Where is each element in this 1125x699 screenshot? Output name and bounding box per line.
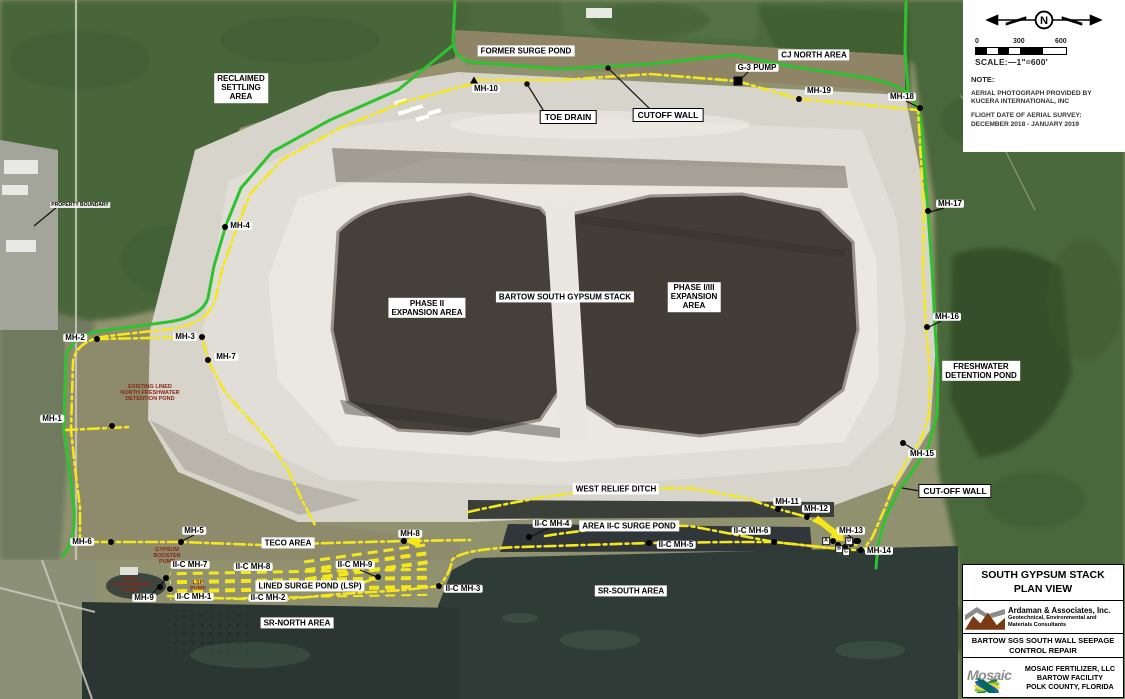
client-text: MOSAIC FERTILIZER, LLC BARTOW FACILITY P…	[1019, 664, 1121, 691]
mh-11-marker	[775, 506, 781, 512]
mh-17-marker	[925, 208, 931, 214]
point-marker-1	[167, 586, 173, 592]
ii-c-mh-2: II-C MH-2	[249, 594, 288, 602]
ii-c-mh-7: II-C MH-7	[171, 561, 210, 569]
marker-d: D	[845, 537, 853, 545]
teco-area: TECO AREA	[262, 537, 315, 548]
mh-7-marker	[205, 357, 211, 363]
freshwater-detention-pond: FRESHWATER DETENTION POND	[942, 361, 1020, 381]
mh-16: MH-16	[933, 313, 961, 321]
spill-containment-pond: SPILL CONTAINMENT POND	[111, 576, 151, 594]
ii-c-mh-4-marker	[526, 534, 532, 540]
ii-c-mh-1: II-C MH-1	[175, 593, 214, 601]
mh-5-marker	[178, 539, 184, 545]
area-ii-c-surge-pond: AREA II-C SURGE POND	[579, 520, 679, 531]
mh-9: MH-9	[132, 594, 156, 602]
mh-7: MH-7	[214, 353, 238, 361]
legend-panel: N 0 300 600 SCALE:—1"=600' NOTE: AERIAL …	[963, 0, 1125, 152]
mh-3: MH-3	[173, 333, 197, 341]
ii-c-mh-6-marker	[771, 539, 777, 545]
svg-text:N: N	[1040, 15, 1048, 27]
ardaman-logo-icon	[965, 604, 1005, 630]
mh-11: MH-11	[773, 498, 801, 506]
point-marker-5	[830, 538, 836, 544]
map-label-layer: RECLAIMED SETTLING AREAFORMER SURGE POND…	[0, 0, 1125, 699]
g3-pump-marker	[734, 77, 743, 86]
mosaic-logo: Mosaic	[965, 663, 1017, 693]
sr-north-area: SR-NORTH AREA	[261, 617, 334, 628]
mh-4: MH-4	[228, 222, 252, 230]
scale-tick-300: 300	[1013, 38, 1025, 45]
project-title: BARTOW SGS SOUTH WALL SEEPAGE CONTROL RE…	[963, 634, 1123, 658]
mh-12: MH-12	[802, 505, 830, 513]
point-marker-6	[855, 538, 861, 544]
phase-ii-expansion-area: PHASE II EXPANSION AREA	[388, 298, 465, 318]
sr-south-area: SR-SOUTH AREA	[595, 585, 667, 596]
title-block: SOUTH GYPSUM STACK PLAN VIEW Ardaman & A…	[962, 564, 1124, 698]
lined-surge-pond-lsp: LINED SURGE POND (LSP)	[255, 580, 364, 591]
mh-10-marker	[470, 77, 478, 84]
ii-c-mh-3-marker	[436, 583, 442, 589]
mosaic-wordmark: Mosaic	[967, 667, 1011, 683]
marker-a: A	[822, 537, 830, 545]
mh-8: MH-8	[398, 530, 422, 538]
toe-drain: TOE DRAIN	[540, 110, 597, 124]
ii-c-mh-9-marker	[375, 574, 381, 580]
mh-1: MH-1	[40, 415, 64, 423]
phase-i-iii-expansion-area: PHASE I/III EXPANSION AREA	[668, 282, 721, 312]
cj-north-area: CJ NORTH AREA	[778, 49, 849, 60]
existing-lined-north-freshwater-detention-pond: EXISTING LINED NORTH FRESHWATER DETENTIO…	[120, 384, 179, 402]
scale-tick-0: 0	[975, 38, 979, 45]
mh-12-marker	[804, 514, 810, 520]
mh-10: MH-10	[472, 85, 500, 93]
mh-19: MH-19	[805, 87, 833, 95]
mh-15-marker	[900, 440, 906, 446]
marker-c: C	[842, 548, 850, 556]
mh-14-marker	[858, 547, 864, 553]
mh-2: MH-2	[63, 334, 87, 342]
mh-15: MH-15	[908, 450, 936, 458]
mh-16-marker	[924, 324, 930, 330]
mh-17: MH-17	[936, 200, 964, 208]
ii-c-mh-8: II-C MH-8	[234, 563, 273, 571]
ii-c-mh-9: II-C MH-9	[336, 561, 375, 569]
cutoff-wall: CUTOFF WALL	[633, 108, 704, 122]
scale-text: SCALE:—1"=600'	[975, 57, 1119, 67]
plan-view-map: RECLAIMED SETTLING AREAFORMER SURGE POND…	[0, 0, 1125, 699]
ii-c-mh-4: II-C MH-4	[533, 520, 572, 528]
north-arrow-icon: N	[980, 6, 1108, 34]
consultant-name: Ardaman & Associates, Inc.	[1008, 606, 1110, 615]
mh-1-marker	[109, 423, 115, 429]
client-row: Mosaic MOSAIC FERTILIZER, LLC BARTOW FAC…	[963, 658, 1123, 697]
mh-13: MH-13	[837, 527, 865, 535]
mh-8-marker	[401, 538, 407, 544]
scale-tick-600: 600	[1055, 38, 1067, 45]
mh-18: MH-18	[888, 93, 916, 101]
mh-19-marker	[796, 96, 802, 102]
mh-2-marker	[94, 336, 100, 342]
bartow-south-gypsum-stack: BARTOW SOUTH GYPSUM STACK	[496, 291, 634, 302]
mh-6: MH-6	[70, 538, 94, 546]
consultant-row: Ardaman & Associates, Inc. Geotechnical,…	[963, 601, 1123, 634]
mh-14: MH-14	[865, 547, 893, 555]
note-heading: NOTE:	[971, 75, 1119, 84]
cut-off-wall: CUT-OFF WALL	[918, 484, 991, 498]
ii-c-mh-6: II-C MH-6	[732, 527, 771, 535]
g3-pump: G-3 PUMP	[736, 64, 779, 72]
mh-5: MH-5	[182, 527, 206, 535]
point-marker-0	[157, 584, 163, 590]
mh-9-marker	[163, 575, 169, 581]
west-relief-ditch: WEST RELIEF DITCH	[573, 483, 659, 494]
note-flight-date: FLIGHT DATE OF AERIAL SURVEY: DECEMBER 2…	[971, 112, 1119, 128]
lsp-pump: LSP PUMP	[190, 580, 206, 592]
former-surge-pond: FORMER SURGE POND	[478, 45, 575, 56]
ii-c-mh-3: II-C MH-3	[444, 585, 483, 593]
mh-4-marker	[222, 224, 228, 230]
scale-bar-graphic	[975, 47, 1067, 55]
ii-c-mh-5: II-C MH-5	[657, 541, 696, 549]
mh-3-marker	[199, 334, 205, 340]
mh-18-marker	[917, 105, 923, 111]
consultant-tagline: Geotechnical, Environmental and Material…	[1008, 615, 1110, 628]
mh-6-marker	[108, 539, 114, 545]
scale-bar: 0 300 600	[975, 38, 1067, 55]
sheet-title: SOUTH GYPSUM STACK PLAN VIEW	[963, 565, 1123, 601]
ii-c-mh-5-marker	[646, 540, 652, 546]
property-boundary: PROPERTY BOUNDARY	[50, 202, 110, 208]
reclaimed-settling-area: RECLAIMED SETTLING AREA	[214, 73, 268, 103]
note-aerial-source: AERIAL PHOTOGRAPH PROVIDED BY KUCERA INT…	[971, 90, 1119, 106]
